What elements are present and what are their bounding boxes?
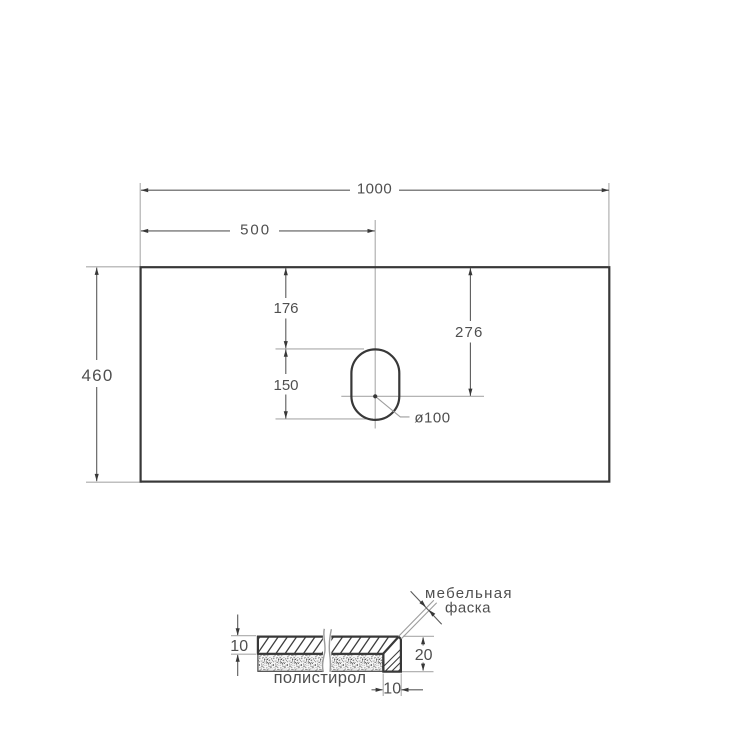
svg-text:ø100: ø100 xyxy=(414,409,450,426)
svg-text:500: 500 xyxy=(240,222,271,239)
svg-text:20: 20 xyxy=(415,647,433,664)
svg-text:150: 150 xyxy=(273,377,298,394)
svg-text:фаска: фаска xyxy=(445,600,491,617)
svg-text:10: 10 xyxy=(230,638,248,655)
svg-text:176: 176 xyxy=(273,300,298,317)
svg-text:276: 276 xyxy=(455,324,484,341)
svg-text:460: 460 xyxy=(82,366,114,385)
svg-text:1000: 1000 xyxy=(357,181,392,198)
svg-text:полистирол: полистирол xyxy=(274,669,367,687)
svg-text:10: 10 xyxy=(383,680,401,697)
